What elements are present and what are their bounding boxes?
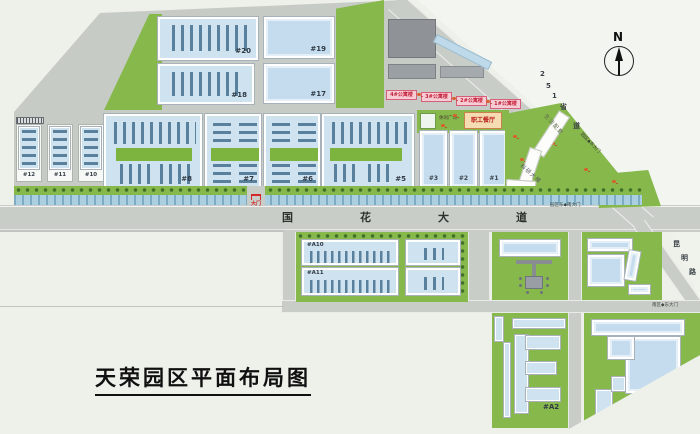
main-gate-icon <box>251 194 261 200</box>
utility-mast-stem <box>532 263 536 276</box>
flower-cluster <box>453 114 457 117</box>
entrance-canopy <box>16 117 44 124</box>
parcel-line-top <box>0 230 284 232</box>
page-title: 天荣园区平面布局图 <box>95 362 311 396</box>
south-gate-label: 园区东◆南大门 <box>550 204 580 209</box>
building-label: #17 <box>310 91 326 98</box>
a2-top-bar <box>513 319 565 328</box>
building-label: #2 <box>452 176 475 182</box>
road-name-char: 路 <box>689 269 696 276</box>
a2-strip <box>495 317 503 341</box>
building-label: #19 <box>310 46 326 53</box>
canteen-building: 职工餐厅 <box>464 112 502 129</box>
canal <box>14 195 642 205</box>
a2-arm <box>526 362 556 374</box>
utility-dot <box>519 277 522 280</box>
south-road-vertical-2 <box>468 232 490 308</box>
a1-top-bar <box>592 320 684 335</box>
building-5: #5 <box>322 114 414 188</box>
apartment-label-text: 2#公寓楼 <box>460 98 483 104</box>
building-label: #7 <box>243 176 254 183</box>
south-road-vertical-3 <box>568 232 582 432</box>
utility-dot <box>540 291 543 294</box>
road-name-char: 昆 <box>673 241 680 248</box>
road-name-char: 2 <box>540 71 545 78</box>
building-a11: #A11 <box>302 268 398 295</box>
road-lane-line <box>0 206 700 207</box>
utility-building <box>500 240 560 256</box>
plaza-pavilion <box>420 113 436 129</box>
road-name-char: 道 <box>516 212 527 223</box>
apartment-label-text: 4#公寓楼 <box>390 92 413 98</box>
plaza-label: 休闲广场 <box>439 117 457 122</box>
flower-cluster <box>452 97 456 100</box>
flower-cluster <box>417 93 421 96</box>
flower-cluster <box>584 168 588 171</box>
apartment-2-label: 2#公寓楼 <box>456 96 487 106</box>
building-label: #5 <box>395 176 406 183</box>
utility-dot <box>526 291 529 294</box>
a2-arm <box>526 388 560 401</box>
building-label: #A10 <box>307 243 324 249</box>
building-label: #1 <box>482 176 506 182</box>
flower-cluster <box>486 100 490 103</box>
a2-arm <box>526 336 560 349</box>
building-3: #3 <box>420 131 447 188</box>
building-17: #17 <box>264 64 334 103</box>
guohua-avenue-road <box>0 205 700 232</box>
south-road-vertical-1 <box>282 232 296 308</box>
building-label: #A11 <box>307 271 324 277</box>
ne-building-small <box>629 285 650 294</box>
flower-cluster <box>441 124 445 127</box>
southeast-gate-label: 南区◆东大门 <box>652 304 678 309</box>
building-11: #11 <box>47 124 73 182</box>
building-small-south <box>406 268 460 295</box>
tree-strip <box>14 186 642 195</box>
main-gate-label: 大门 <box>251 202 261 207</box>
road-name-char: 国 <box>282 212 293 223</box>
a1-mid <box>608 337 634 359</box>
road-name-char: 5 <box>546 83 551 90</box>
building-8: #8 <box>104 114 202 188</box>
road-name-char: 道 <box>573 123 580 130</box>
building-18: #18 <box>158 64 254 104</box>
a2-strip <box>504 343 510 417</box>
utility-dot <box>546 284 549 287</box>
building-label: #10 <box>79 173 103 179</box>
apartment-label-text: 1#公寓楼 <box>494 101 517 107</box>
building-label: #18 <box>231 92 247 99</box>
apartment-3-label: 3#公寓楼 <box>421 92 452 102</box>
building-label: #3 <box>422 176 445 182</box>
building-2: #2 <box>450 131 477 188</box>
canteen-label: 职工餐厅 <box>471 117 495 124</box>
flower-cluster <box>513 135 517 138</box>
compass-needle <box>615 47 623 61</box>
building-label: #11 <box>48 173 72 179</box>
apartment-4-label: 4#公寓楼 <box>386 90 417 100</box>
utility-dot <box>519 284 522 287</box>
flower-cluster <box>520 158 524 161</box>
grey-facility-small <box>440 66 484 78</box>
a1-small <box>612 377 625 391</box>
apartment-1-label: 1#公寓楼 <box>490 99 521 109</box>
road-name-char: 明 <box>681 255 688 262</box>
site-plan-map: #20 #19 #18 #17 4#公寓楼 3#公寓楼 2#公寓楼 1#公寓楼 … <box>0 0 700 434</box>
grey-facility-mid <box>388 64 436 79</box>
grey-facility-large <box>388 19 436 58</box>
compass-needle <box>618 61 620 75</box>
building-a10: #A10 <box>302 240 398 265</box>
road-name-char: 1 <box>552 93 557 100</box>
building-label: #12 <box>17 173 41 179</box>
ne-building-main <box>588 255 624 286</box>
building-7: #7 <box>205 114 261 188</box>
building-label: #20 <box>235 48 251 55</box>
utility-dot <box>546 277 549 280</box>
apartment-label-text: 3#公寓楼 <box>425 94 448 100</box>
building-10: #10 <box>78 124 104 182</box>
tree-strip <box>296 232 468 239</box>
flower-cluster <box>612 180 616 183</box>
building-small-north <box>406 240 460 265</box>
building-label: #A2 <box>543 404 559 411</box>
compass-n-label: N <box>613 30 623 44</box>
parcel-line-bottom <box>0 306 284 307</box>
building-6: #6 <box>264 114 320 188</box>
building-19: #19 <box>264 17 334 58</box>
ne-building-bar <box>588 239 632 251</box>
utility-pad <box>525 276 543 289</box>
building-1: #1 <box>480 131 508 188</box>
road-name-char: 大 <box>438 212 449 223</box>
building-20: #20 <box>158 17 258 60</box>
building-12: #12 <box>16 124 42 182</box>
road-name-char: 花 <box>360 212 371 223</box>
green-strip-center <box>336 0 384 108</box>
building-label: #8 <box>181 176 192 183</box>
road-name-char: 省 <box>560 104 567 111</box>
building-label: #6 <box>302 176 313 183</box>
